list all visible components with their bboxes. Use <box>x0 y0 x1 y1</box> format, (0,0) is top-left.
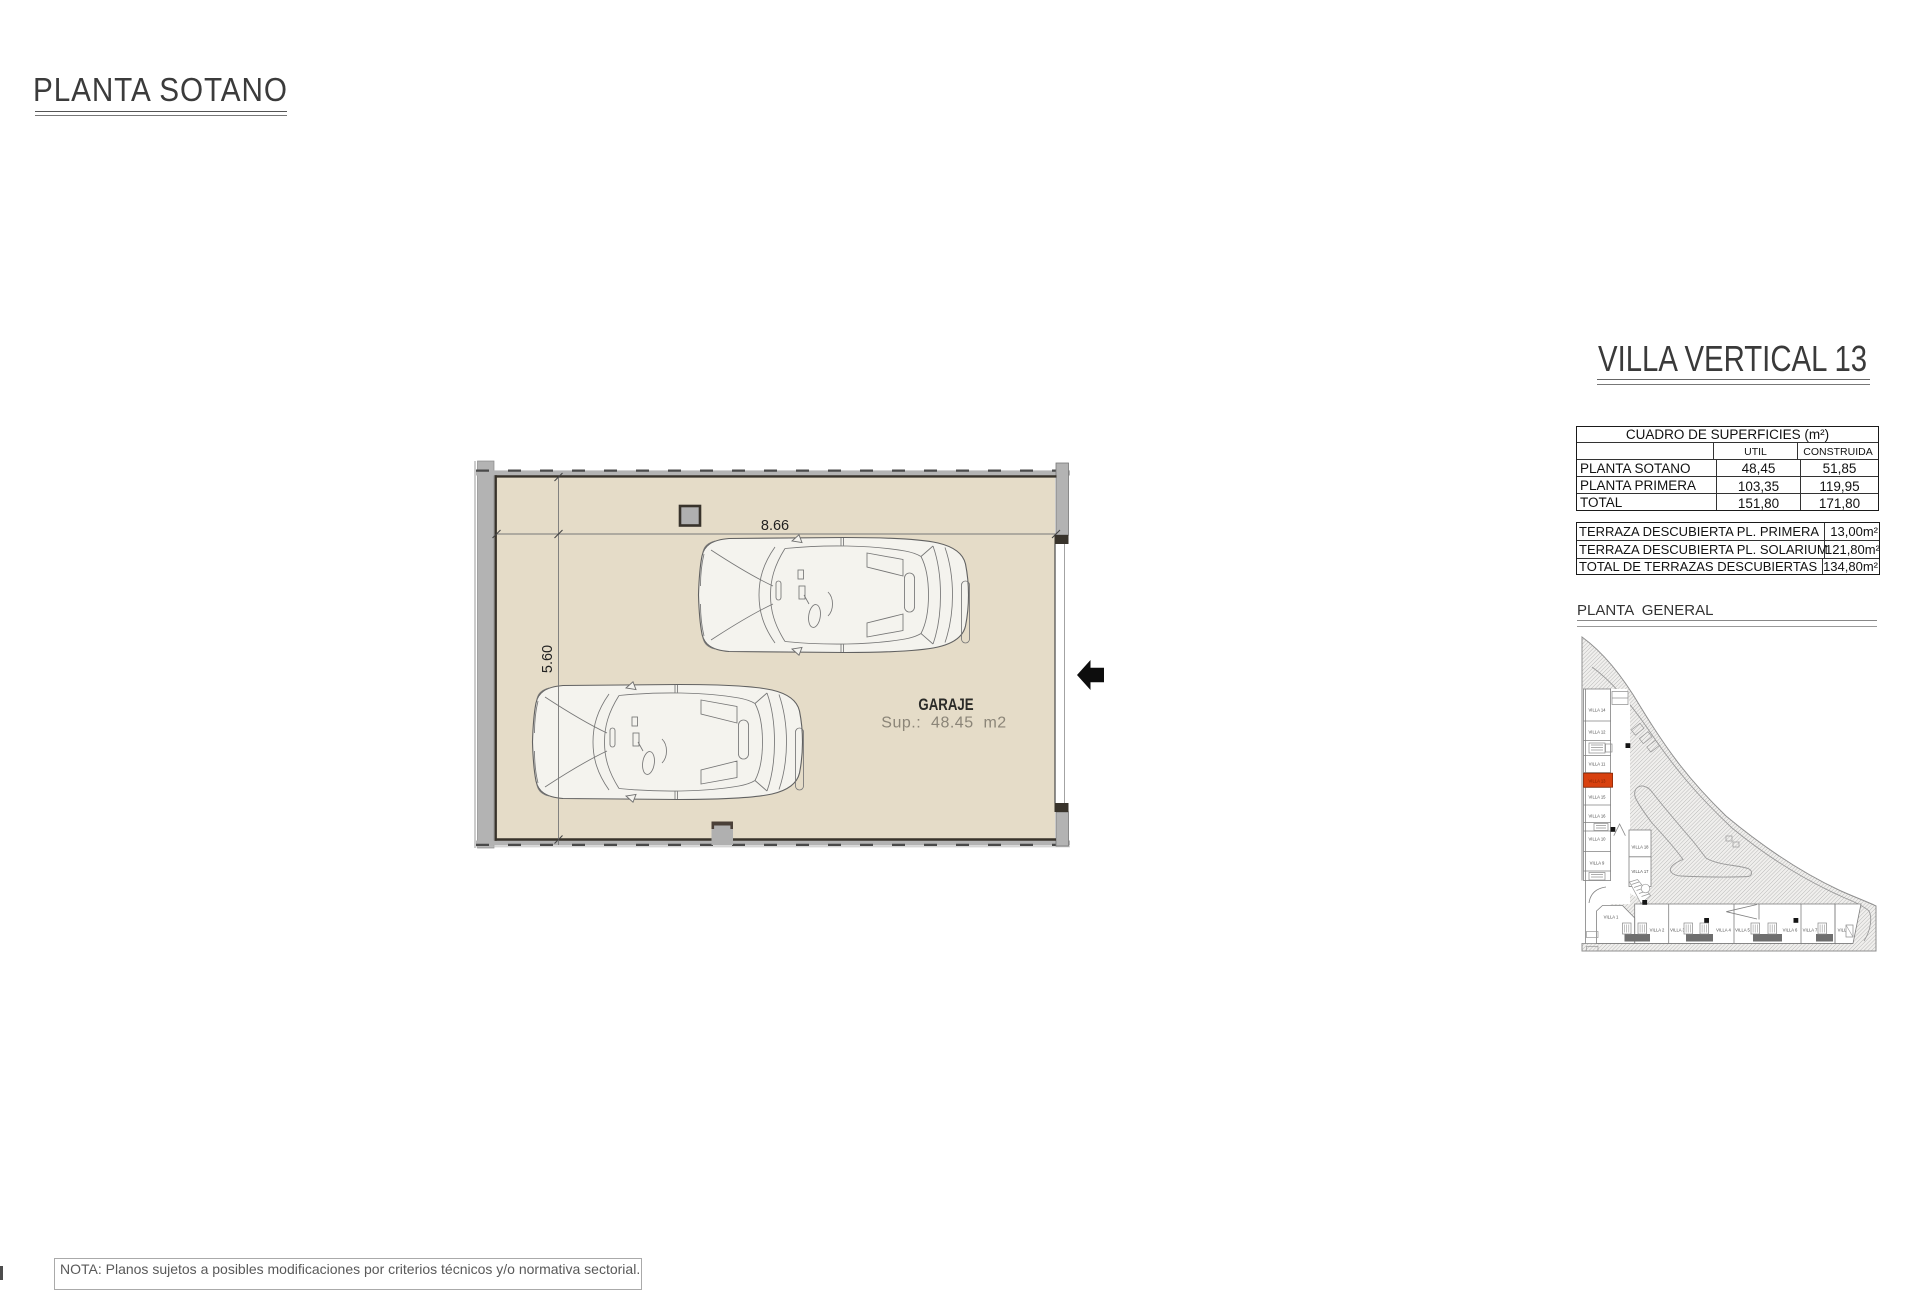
svg-text:VILLA 3: VILLA 3 <box>1670 928 1685 933</box>
svg-text:VILLA 13: VILLA 13 <box>1589 779 1607 784</box>
svg-text:VILLA 7: VILLA 7 <box>1803 928 1818 933</box>
svg-text:VILLA 9: VILLA 9 <box>1590 861 1605 866</box>
svg-text:VILLA 17: VILLA 17 <box>1632 869 1650 874</box>
svg-text:8.66: 8.66 <box>761 518 789 534</box>
svg-text:VILLA 12: VILLA 12 <box>1589 730 1607 735</box>
svg-text:5.60: 5.60 <box>540 645 556 673</box>
svg-text:VILLA 6: VILLA 6 <box>1783 928 1798 933</box>
svg-text:VILLA 11: VILLA 11 <box>1589 762 1606 767</box>
svg-text:VILLA 2: VILLA 2 <box>1650 928 1665 933</box>
svg-text:VILLA 14: VILLA 14 <box>1589 708 1607 713</box>
svg-text:VILLA 4: VILLA 4 <box>1716 928 1731 933</box>
svg-text:VILLA 1: VILLA 1 <box>1604 915 1619 920</box>
svg-text:Sup.: 48.45 m2: Sup.: 48.45 m2 <box>881 715 1006 732</box>
svg-text:VILLA 18: VILLA 18 <box>1632 845 1650 850</box>
svg-text:GARAJE: GARAJE <box>918 696 973 715</box>
svg-text:VILLA 15: VILLA 15 <box>1589 795 1607 800</box>
svg-text:VILLA 16: VILLA 16 <box>1589 814 1607 819</box>
svg-text:VILLA 5: VILLA 5 <box>1735 928 1750 933</box>
svg-text:VILLA 10: VILLA 10 <box>1589 837 1607 842</box>
